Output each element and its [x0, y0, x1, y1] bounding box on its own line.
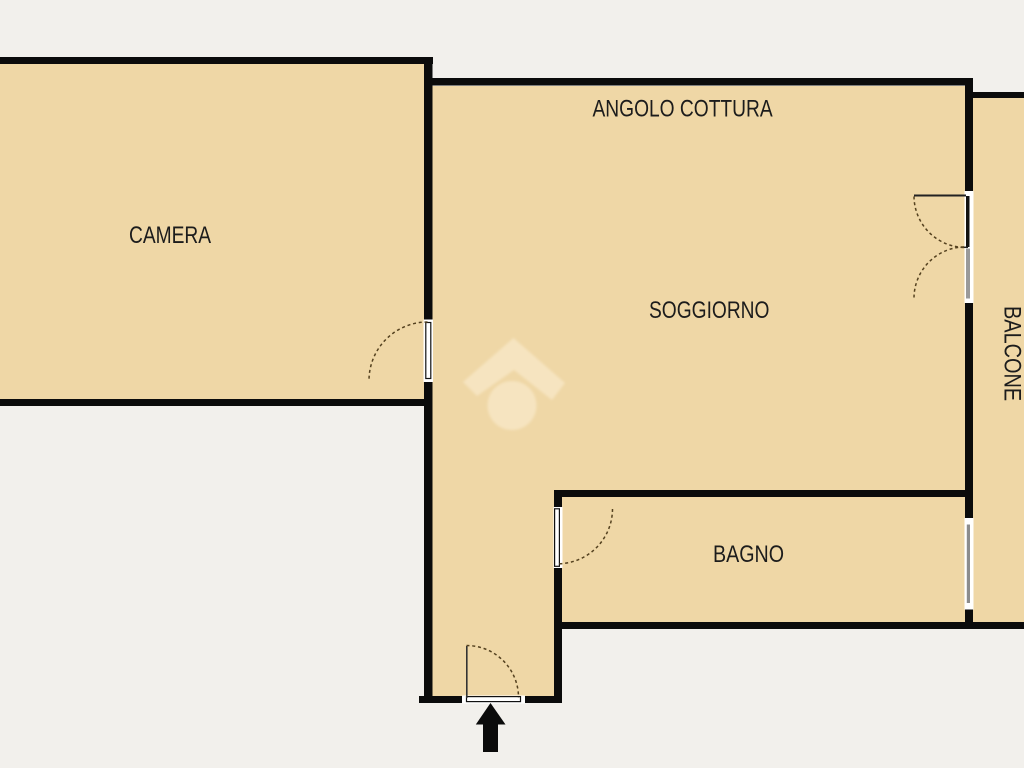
svg-text:ANGOLO COTTURA: ANGOLO COTTURA — [593, 94, 774, 122]
svg-text:BALCONE: BALCONE — [999, 306, 1024, 401]
svg-text:BAGNO: BAGNO — [713, 540, 784, 567]
svg-text:SOGGIORNO: SOGGIORNO — [649, 296, 769, 324]
svg-text:CAMERA: CAMERA — [129, 221, 212, 249]
